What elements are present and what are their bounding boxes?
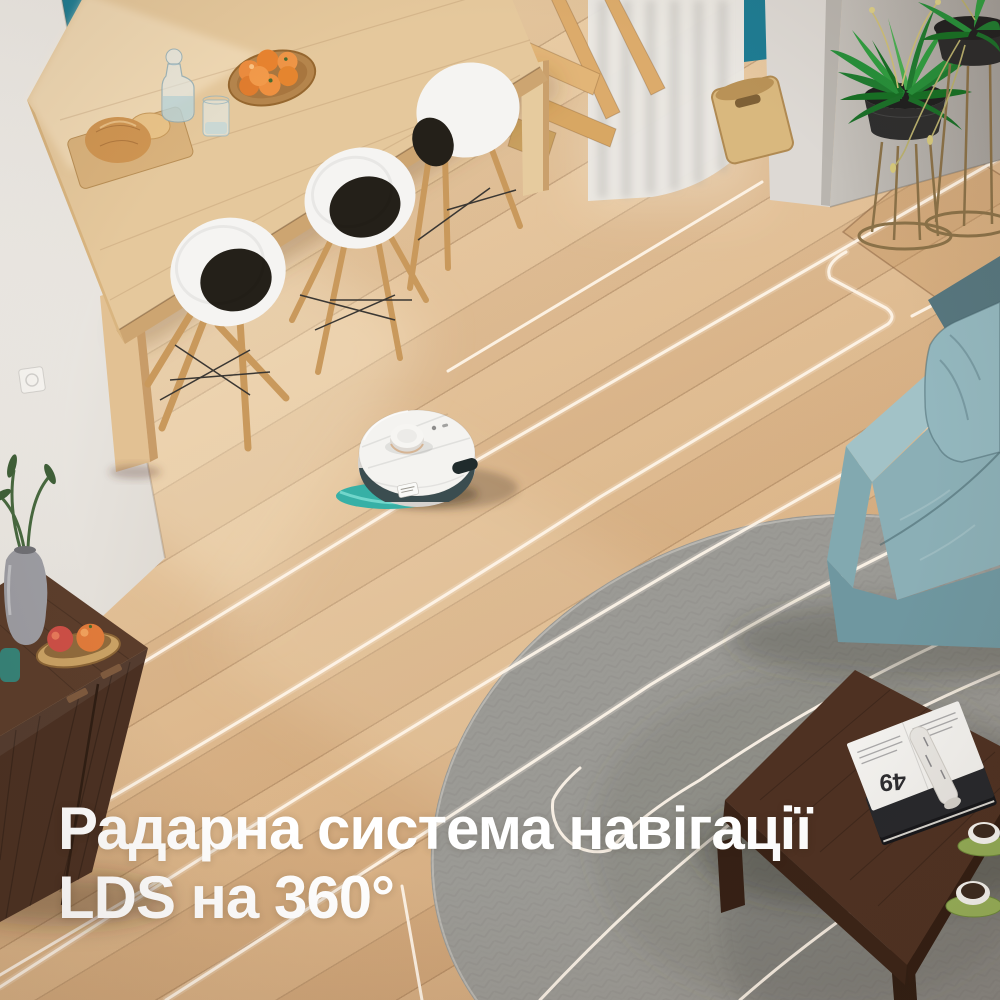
headline-line1: Радарна система навігації [58,794,811,863]
teal-glass [0,648,20,682]
product-hero-image: 49 [0,0,1000,1000]
drinking-glass [203,96,229,136]
light-switch [18,366,45,393]
sofa [730,256,1000,680]
headline-line2: LDS на 360° [58,863,811,932]
sofa-pillow [925,302,1000,462]
headline: Радарна система навігації LDS на 360° [58,794,811,932]
magazine-page-number: 49 [879,767,908,796]
